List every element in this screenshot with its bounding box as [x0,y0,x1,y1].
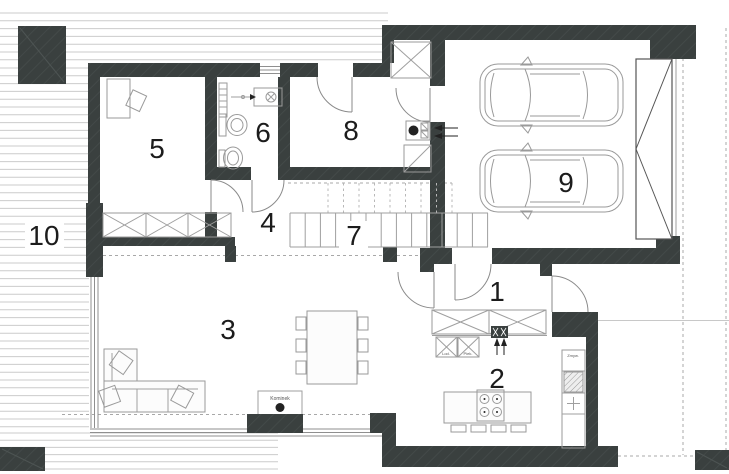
dishwasher-label: Zmyw. [567,353,579,358]
window-west [91,277,98,428]
bedroom-door [211,180,243,212]
room-6-number: 6 [255,117,271,148]
room-2-number: 2 [489,363,505,394]
room-8-number: 8 [343,115,359,146]
chair [358,361,368,374]
tech-room-fixtures [391,42,458,172]
sofa [99,349,205,412]
garage-door [636,59,676,239]
staircase [290,183,488,247]
flue-icon [276,403,285,412]
stool [471,425,486,432]
chair [358,339,368,352]
kitchen-island [444,390,531,432]
chair [358,317,368,330]
towel-radiator [219,83,227,117]
fireplace-label: Kominek [270,396,290,402]
floor-plan-page: Lod. Piek. Zmyw [0,0,729,474]
car-1 [480,57,623,133]
chair [296,317,306,330]
chair [296,339,306,352]
hearth [247,414,303,433]
hall-to-living-door [398,272,434,308]
oven-cabinet: Piek. [458,337,479,357]
room-5-number: 5 [149,133,165,164]
kitchen-counter: Zmyw. [562,350,585,448]
floor-plan-drawing: Lod. Piek. Zmyw [0,0,729,474]
garage-to-hall-door [455,264,491,300]
fridge-cabinet: Lod. [436,337,457,357]
room-10-number: 10 [28,220,59,251]
tech-to-garage-door [396,88,430,122]
hall-wardrobe [432,310,547,338]
ventilation-shaft-box [391,42,431,78]
shower-unit-icon [240,88,282,106]
dining-table [296,311,368,384]
stool [491,425,506,432]
desk [107,79,147,118]
stairs-treads [290,213,488,247]
stool [451,425,466,432]
room-3-number: 3 [220,314,236,345]
window-south [90,429,384,436]
room-7-number: 7 [346,220,362,251]
chair [296,361,306,374]
oven-label: Piek. [464,351,473,356]
entrance-door [552,276,588,312]
doors [211,77,588,312]
bidet [219,147,243,169]
fridge-label: Lod. [442,351,450,356]
room-4-number: 4 [260,207,276,238]
stool [511,425,526,432]
desk-chair [126,90,147,112]
room-1-number: 1 [489,276,505,307]
duct-shaft [491,326,508,338]
bathroom-fixtures [219,83,282,169]
kitchen: Lod. Piek. Zmyw [436,337,585,448]
tech-room-exterior-door [317,77,352,112]
sink [564,372,583,392]
stair-column [383,247,397,262]
room-9-number: 9 [558,167,574,198]
fireplace: Kominek [247,391,303,433]
vent-arrows-icon [494,338,507,355]
window-top [260,67,280,74]
